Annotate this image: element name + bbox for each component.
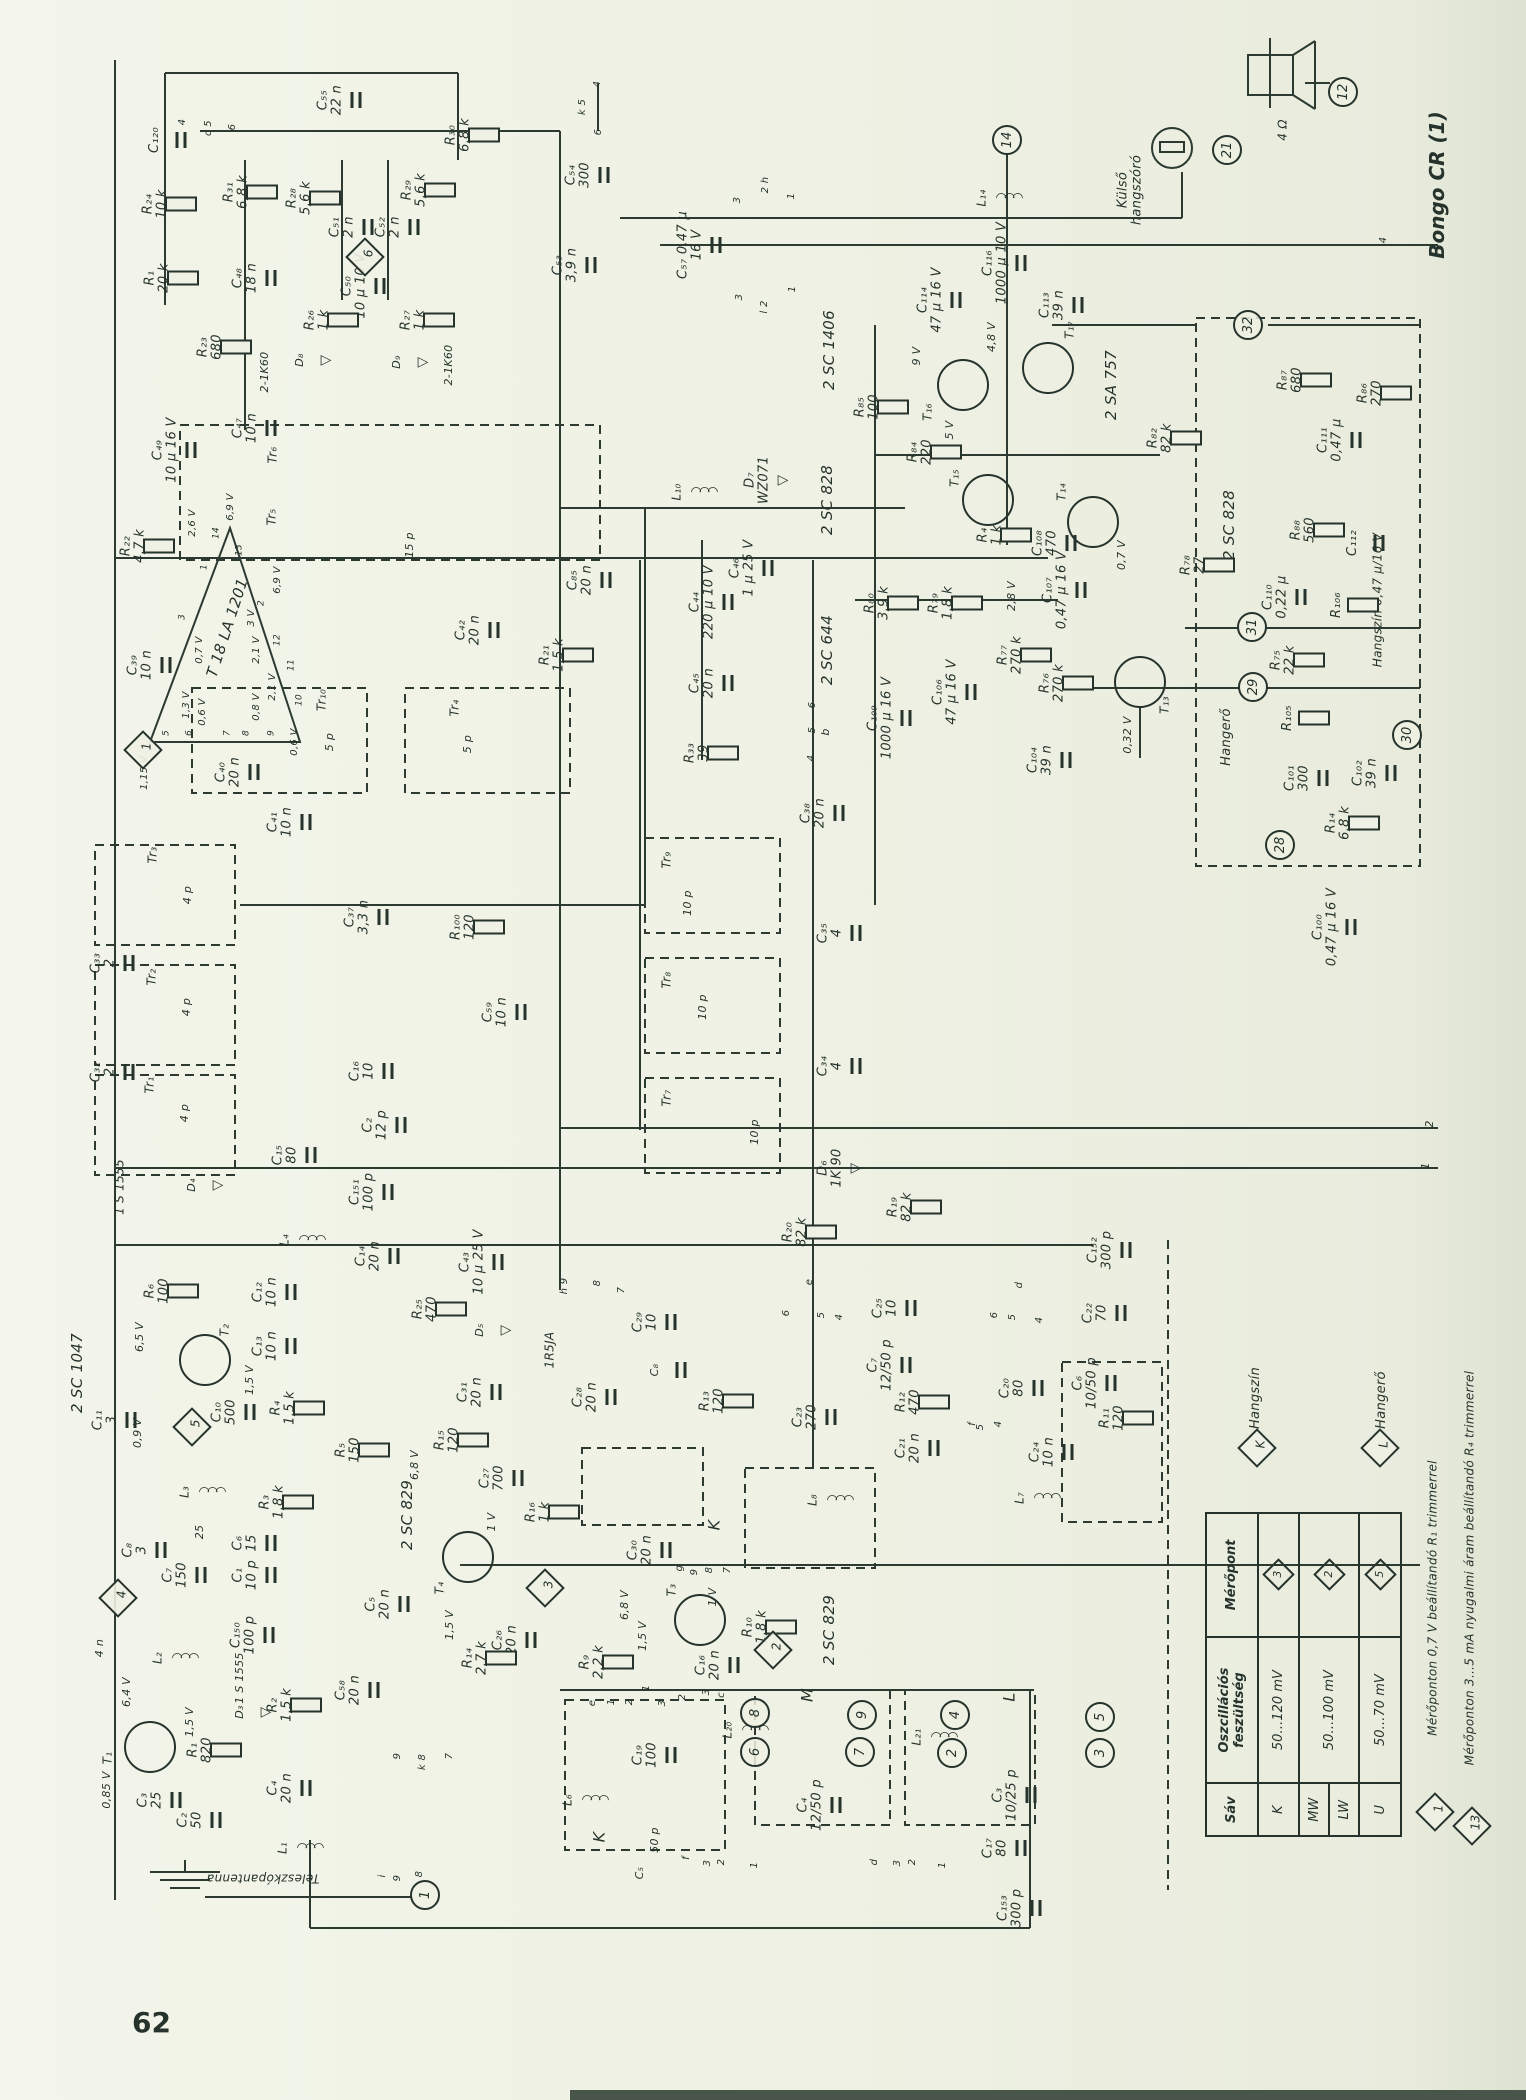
capacitor-symbol — [676, 1362, 687, 1378]
component-label: C₁₂ 10 n — [251, 1277, 278, 1307]
component-label: C₁₀₁ 300 — [1283, 765, 1310, 791]
component-label: C₃₈ 20 n — [799, 798, 826, 828]
resistor-symbol — [309, 191, 341, 206]
component-label: R₈₈ 560 — [1289, 517, 1316, 543]
component-label: K — [592, 1832, 609, 1843]
component-label: L₁₀ — [671, 483, 684, 500]
capacitor-symbol — [711, 237, 722, 253]
component-label: D₃ — [234, 1705, 246, 1718]
resistor-symbol — [1170, 431, 1202, 446]
capacitor-symbol — [1318, 770, 1329, 786]
component-label: 1 — [788, 286, 799, 293]
capacitor-symbol — [286, 1284, 297, 1300]
component-label: l 2 — [760, 300, 771, 313]
component-label: Tr₈ — [661, 971, 674, 988]
component-label: 2 — [717, 1859, 728, 1866]
schematic-page: C₁₂₀4c 56C₅₅ 22 nR₃₁ 6,8 kR₂₄ 10 kR₂₈ 5,… — [0, 0, 1526, 2100]
capacitor-symbol — [851, 925, 862, 941]
component-label: 10 p — [682, 890, 694, 916]
capacitor-symbol — [375, 278, 386, 294]
coil-symbol: ◠◠◠ — [581, 1793, 606, 1808]
capacitor-symbol — [301, 1780, 312, 1796]
component-label: 1R5JA — [544, 1332, 557, 1369]
component-label: R₂₈ 5,6 k — [285, 181, 312, 215]
component-label: C₂₁ 20 n — [894, 1433, 921, 1463]
resistor-symbol — [220, 340, 252, 355]
diode-symbol: ▷ — [213, 1177, 224, 1193]
component-label: 6 — [594, 129, 605, 136]
component-label: C₁₇ 80 — [981, 1838, 1008, 1858]
component-label: R₈₆ 270 — [1356, 380, 1383, 406]
component-label: T₁ — [102, 1752, 115, 1765]
component-label: C₄₈ 18 n — [231, 263, 258, 293]
component-label: R₈₄ 220 — [906, 439, 933, 465]
component-label: D₈ — [294, 353, 306, 366]
capacitor-symbol — [363, 219, 374, 235]
terminal-9: 9 — [847, 1700, 877, 1730]
measurement-table: Sáv Oszcillációs feszültség Mérőpont K50… — [1205, 1512, 1402, 1837]
terminal-14: 14 — [992, 125, 1022, 155]
component-label: R₃ 1,8 k — [258, 1485, 285, 1519]
capacitor-symbol — [171, 1792, 182, 1808]
transistor-T1 — [124, 1721, 176, 1773]
component-label: e — [805, 1279, 816, 1285]
component-label: 1,5 V — [444, 1610, 456, 1640]
component-label: C₁₁₀ 0,22 µ — [1261, 575, 1288, 618]
resistor-symbol — [282, 1495, 314, 1510]
note-text: Mérőponton 0,7 V beállítandó R₁ trimmerr… — [1427, 1460, 1440, 1736]
component-label: C₁₀₆ 47 µ 16 V — [931, 659, 958, 724]
terminal-12: 12 — [1328, 77, 1358, 107]
component-label: 2,8 V — [1006, 581, 1018, 611]
component-label: C₁₅ 80 — [271, 1145, 298, 1165]
component-label: 1 — [938, 1862, 949, 1869]
component-label: R₁ 820 — [186, 1737, 213, 1763]
component-label: C₅₈ 20 n — [334, 1675, 361, 1705]
component-label: C₃ 25 — [136, 1791, 163, 1808]
component-label: R₇₉ 1,8 k — [927, 586, 954, 620]
component-label: Tr₆ — [267, 446, 280, 463]
component-label: C₁₅₁ 100 p — [348, 1173, 375, 1212]
transistor-T4 — [442, 1531, 494, 1583]
capacitor-symbol — [266, 1567, 277, 1583]
capacitor-symbol — [266, 420, 277, 436]
coil-symbol: ◠◠◠ — [995, 191, 1020, 206]
component-label: 3 — [178, 614, 187, 620]
component-label: L₂₀ — [722, 1721, 735, 1738]
component-label: R₂₁ 1,5 k — [538, 638, 565, 672]
component-label: Teleszkópantenna — [207, 1872, 320, 1885]
component-label: 4 — [593, 81, 604, 88]
component-label: 6,5 V — [134, 1322, 146, 1352]
table-header-oszc: Oszcillációs feszültség — [1206, 1637, 1258, 1784]
capacitor-symbol — [1076, 582, 1087, 598]
capacitor-symbol — [513, 1470, 524, 1486]
component-label: C₁₁ 3 — [91, 1410, 118, 1430]
component-label: C₁₀₄ 39 n — [1026, 745, 1053, 775]
component-label: C₁₅₃ 300 p — [996, 1889, 1023, 1928]
component-label: 2 SC 828 — [1222, 490, 1238, 560]
component-label: 6,8 V — [619, 1590, 631, 1620]
capacitor-symbol — [599, 167, 610, 183]
component-label: R₉ 2,2 k — [578, 1645, 605, 1679]
component-label: C₂₂ 70 — [1081, 1303, 1108, 1323]
component-label: C₅₄ 300 — [564, 162, 591, 188]
component-label: C₄₇ 10 n — [231, 413, 258, 443]
table-header-meropont: Mérőpont — [1206, 1513, 1258, 1637]
component-label: 7 — [617, 1287, 628, 1294]
component-label: 25 — [194, 1525, 206, 1540]
table-row: U50…70 mV 5 — [1359, 1513, 1401, 1836]
component-label: C₃₉ 10 n — [126, 650, 153, 680]
component-label: 3 V — [247, 609, 258, 626]
component-label: C₃ 10/25 p — [991, 1769, 1018, 1821]
component-label: R₂₀ 82 k — [781, 1217, 808, 1246]
table-row: K50…120 mV 3 — [1258, 1513, 1300, 1836]
component-label: C₁₉ 100 — [631, 1742, 658, 1768]
component-label: L₂₁ — [911, 1728, 924, 1745]
transistor-T15 — [962, 474, 1014, 526]
component-label: 3 — [733, 197, 744, 204]
component-label: R₁ 20 k — [143, 263, 170, 292]
component-label: 2-1K60 — [259, 352, 271, 393]
transistor-T13 — [1114, 656, 1166, 708]
component-label: R₁₅ 120 — [433, 1427, 460, 1453]
component-label: C₅₃ 3,9 n — [551, 248, 578, 283]
capacitor-symbol — [1031, 1900, 1042, 1916]
capacitor-symbol — [1351, 432, 1362, 448]
capacitor-symbol — [396, 1117, 407, 1133]
component-label: 4 — [807, 755, 818, 762]
capacitor-symbol — [601, 572, 612, 588]
component-label: R₁₉ 82 k — [886, 1192, 913, 1221]
component-label: 2 SC 828 — [820, 465, 836, 535]
component-label: Tr₉ — [661, 851, 674, 868]
component-label: R₂₂ 4,7 k — [119, 529, 146, 563]
component-label: R₄ 1 k — [976, 525, 1003, 546]
diode-symbol: ▷ — [418, 354, 429, 370]
capacitor-symbol — [723, 594, 734, 610]
component-label: C₁₁₄ 47 µ 16 V — [916, 267, 943, 332]
component-label: C₁ 10 p — [231, 1560, 258, 1590]
resistor-symbol — [877, 400, 909, 415]
component-label: M — [800, 1688, 817, 1702]
capacitor-symbol — [399, 1596, 410, 1612]
capacitor-symbol — [306, 1147, 317, 1163]
component-label: c — [717, 1692, 728, 1698]
component-label: C₈ 3 — [121, 1543, 148, 1558]
resistor-symbol — [143, 539, 175, 554]
component-label: D₆ 1K 90 — [816, 1149, 843, 1188]
component-label: 1 — [750, 1862, 761, 1869]
capacitor-symbol — [1016, 1840, 1027, 1856]
component-label: 5 — [817, 1312, 828, 1319]
component-label: C₁₆ 20 n — [694, 1650, 721, 1680]
component-label: 5 V — [944, 421, 956, 440]
component-label: C₁₀₇ 0,47 µ 16 V — [1041, 551, 1068, 629]
component-label: 50 p — [649, 1827, 661, 1853]
coil-symbol: ◠◠◠ — [826, 1493, 851, 1508]
resistor-symbol — [951, 596, 983, 611]
component-label: 8 — [242, 730, 251, 736]
terminal-3: 3 — [1085, 1738, 1115, 1768]
capacitor-symbol — [516, 1004, 527, 1020]
component-label: R₃₀ 6,8 k — [444, 118, 471, 152]
component-label: C₃₃ 2 — [89, 953, 116, 973]
component-label: 1 — [1420, 1162, 1432, 1169]
component-label: R₂₄ 10 k — [141, 189, 168, 218]
testpoint-2-icon: 2 — [1313, 1559, 1346, 1592]
component-label: C₁₆ 10 — [348, 1061, 375, 1081]
transistor-T16 — [937, 359, 989, 411]
capacitor-symbol — [851, 1058, 862, 1074]
component-label: 9 — [393, 1753, 404, 1760]
component-label: R₈₅ 100 — [853, 394, 880, 420]
component-label: 4 — [835, 1314, 846, 1321]
capacitor-symbol — [526, 1632, 537, 1648]
capacitor-symbol — [666, 1314, 677, 1330]
terminal-31: 31 — [1237, 612, 1267, 642]
capacitor-symbol — [906, 1300, 917, 1316]
component-label: 8 — [415, 1871, 426, 1878]
component-label: 0,7 V — [195, 636, 206, 663]
transistor-T17 — [1022, 342, 1074, 394]
component-label: 2 — [625, 1699, 636, 1706]
component-label: e — [588, 1700, 599, 1706]
component-label: 10 — [295, 694, 304, 706]
component-label: C₂ 12 p — [361, 1110, 388, 1140]
resistor-symbol — [1347, 598, 1379, 613]
capacitor-symbol — [211, 1812, 222, 1828]
component-label: C₂₇ 700 — [478, 1465, 505, 1491]
component-label: C₁₀₂ 39 n — [1351, 758, 1378, 788]
component-label: 14 — [212, 527, 221, 539]
capacitor-symbol — [266, 270, 277, 286]
component-label: C₁₁₆ 1000 µ 10 V — [981, 222, 1008, 305]
component-label: 6 — [185, 730, 194, 736]
component-label: C₁₅₂ 300 p — [1086, 1231, 1113, 1270]
component-label: C₁₂₀ — [148, 127, 162, 153]
capacitor-symbol — [951, 292, 962, 308]
component-label: 8 — [593, 1280, 604, 1287]
component-label: c 5 — [204, 120, 215, 136]
capacitor-symbol — [1296, 589, 1307, 605]
resistor-symbol — [1122, 1411, 1154, 1426]
component-label: R₂₃ 680 — [196, 334, 223, 360]
resistor-symbol — [1313, 523, 1345, 538]
component-label: Tr₃ — [147, 846, 160, 863]
component-label: C₈₅ 20 n — [566, 565, 593, 595]
capacitor-symbol — [383, 1063, 394, 1079]
schematic-title: Bongo CR (1) — [1425, 111, 1449, 258]
capacitor-symbol — [383, 1184, 394, 1200]
component-label: R₁₃ 120 — [698, 1388, 725, 1414]
component-label: k 8 — [418, 1754, 429, 1770]
component-label: 5 — [162, 730, 171, 736]
component-label: 9 — [267, 730, 276, 736]
component-label: C₃₁ 20 n — [456, 1377, 483, 1407]
component-label: C₂₅ 10 — [871, 1298, 898, 1318]
component-label: C₇ 12/50 p — [866, 1339, 893, 1391]
component-label: 0,8 V — [252, 693, 263, 720]
component-label: Hangerő — [1220, 708, 1234, 766]
page-number: 62 — [132, 2006, 171, 2039]
resistor-symbol — [468, 128, 500, 143]
component-label: C₅₉ 10 n — [481, 997, 508, 1027]
component-label: 2 — [257, 600, 266, 606]
component-label: L₆ — [562, 1794, 575, 1806]
component-label: C₃₄ 4 — [816, 1056, 843, 1076]
component-label: T₁₇ — [1064, 321, 1077, 339]
component-label: 1,3 V — [182, 691, 193, 718]
resistor-symbol — [1298, 711, 1330, 726]
component-label: 2,6 V — [188, 509, 199, 536]
component-label: R₄ 1,5 k — [269, 1391, 296, 1425]
component-label: T₁₅ — [949, 469, 962, 487]
component-label: C₂₄ 10 n — [1028, 1437, 1055, 1467]
component-label: 4 — [994, 1421, 1005, 1428]
component-label: Tr₁₀ — [316, 689, 329, 711]
component-label: Tr₄ — [449, 699, 462, 716]
resistor-symbol — [167, 1284, 199, 1299]
capacitor-symbol — [666, 1747, 677, 1763]
capacitor-symbol — [156, 1542, 167, 1558]
capacitor-symbol — [729, 1657, 740, 1673]
component-label: Külső hangszóró — [1116, 155, 1143, 225]
component-label: C₂₃ 270 — [791, 1404, 818, 1430]
component-label: 0,6 V — [290, 728, 301, 755]
component-label: T₃ — [666, 1584, 679, 1597]
terminal-5: 5 — [1085, 1702, 1115, 1732]
resistor-symbol — [562, 648, 594, 663]
capacitor-symbol — [834, 805, 845, 821]
component-label: L — [1002, 1692, 1019, 1701]
component-label: 4 p — [179, 1104, 191, 1122]
component-label: 3 — [893, 1860, 904, 1867]
resistor-symbol — [722, 1394, 754, 1409]
component-label: 2 — [1424, 1120, 1436, 1127]
capacitor-symbol — [586, 257, 597, 273]
component-label: C₁₁₃ 39 n — [1038, 290, 1065, 320]
resistor-symbol — [167, 271, 199, 286]
component-label: 3 — [735, 294, 746, 301]
component-label: C₄ 12/50 p — [796, 1779, 823, 1831]
component-label: C₂₀ 80 — [998, 1378, 1025, 1398]
capacitor-symbol — [124, 955, 135, 971]
component-label: D₄ — [186, 1178, 198, 1191]
coil-symbol: ◠◠◠ — [198, 1485, 223, 1500]
component-label: C₅₅ 22 n — [316, 85, 343, 115]
resistor-symbol — [293, 1401, 325, 1416]
component-label: 7 — [223, 730, 232, 736]
resistor-symbol — [165, 197, 197, 212]
component-label: 9 — [690, 1569, 701, 1576]
component-label: C₆ 15 — [231, 1534, 258, 1551]
capacitor-symbol — [493, 1254, 504, 1270]
component-label: 1 S 1555 — [114, 1159, 127, 1215]
resistor-symbol — [930, 445, 962, 460]
component-label: 2 h — [761, 177, 772, 194]
capacitor-symbol — [249, 764, 260, 780]
component-label: C₄ 20 n — [266, 1773, 293, 1803]
coil-symbol: ◠◠◠ — [690, 485, 715, 500]
component-label: C₁₀₈ 470 — [1031, 530, 1058, 556]
component-label: C₄₉ 10 µ 16 V — [151, 417, 178, 482]
component-label: R₇₅ 22 k — [1269, 645, 1296, 674]
terminal-2: 2 — [937, 1738, 967, 1768]
capacitor-symbol — [901, 1357, 912, 1373]
component-label: 10 p — [697, 994, 709, 1020]
terminal-29: 29 — [1238, 672, 1268, 702]
component-label: C₄₅ 20 n — [688, 668, 715, 698]
capacitor-symbol — [266, 1535, 277, 1551]
component-label: C₂₉ 10 — [631, 1312, 658, 1332]
component-label: 4 — [1035, 1317, 1046, 1324]
component-label: Hangszín — [1249, 1367, 1263, 1429]
resistor-symbol — [805, 1225, 837, 1240]
resistor-symbol — [246, 185, 278, 200]
capacitor-symbol — [351, 92, 362, 108]
component-label: R₁₀₅ — [1281, 705, 1295, 731]
component-label: C₇ 150 — [161, 1562, 188, 1588]
component-label: R₇₆ 270 k — [1038, 664, 1065, 702]
component-label: 2 SA 757 — [1104, 350, 1120, 420]
transistor-T3 — [674, 1594, 726, 1646]
component-label: C₁₄ 20 n — [354, 1241, 381, 1271]
component-label: 5 — [808, 727, 819, 734]
component-label: 6 — [990, 1312, 1001, 1319]
component-label: 4 — [1379, 237, 1390, 244]
component-label: d — [1015, 1282, 1026, 1289]
resistor-symbol — [707, 746, 739, 761]
capacitor-symbol — [196, 1567, 207, 1583]
component-label: 4 Ω — [1277, 119, 1290, 141]
diode-symbol: ▷ — [321, 352, 332, 368]
component-label: 1,5 V — [184, 1707, 196, 1737]
component-label: C₁₅₀ 100 p — [229, 1616, 256, 1655]
component-label: 2 SC 829 — [400, 1480, 416, 1550]
component-label: 2 — [908, 1859, 919, 1866]
terminal-1: 1 — [410, 1880, 440, 1910]
component-label: R₆ 100 — [143, 1278, 170, 1304]
component-label: 15 p — [404, 532, 416, 558]
capacitor-symbol — [1116, 1305, 1127, 1321]
resistor-symbol — [1380, 386, 1412, 401]
capacitor-symbol — [1061, 752, 1072, 768]
component-label: Hangerő — [1375, 1371, 1389, 1429]
component-label: C₃₀ 20 n — [626, 1535, 653, 1565]
component-label: C₄₄ 220 µ 10 V — [688, 565, 715, 639]
component-label: f — [682, 1856, 693, 1860]
component-label: b — [820, 728, 832, 735]
table-row: MW50…100 mV 2 — [1299, 1513, 1329, 1836]
component-label: 4 n — [94, 1639, 106, 1657]
resistor-symbol — [1020, 648, 1052, 663]
component-label: 3 — [702, 1689, 713, 1696]
component-label: 5 p — [462, 735, 474, 753]
component-label: 2 SC 829 — [822, 1595, 838, 1665]
capacitor-symbol — [831, 1797, 842, 1813]
diode-symbol: ▷ — [501, 1322, 512, 1338]
component-label: k 5 — [578, 99, 589, 115]
component-label: R₈₂ 82 k — [1146, 423, 1173, 452]
component-label: C₄₃ 10 µ 25 V — [458, 1229, 485, 1294]
resistor-symbol — [1300, 373, 1332, 388]
component-label: C₁₁₁ 0,47 µ — [1316, 418, 1343, 461]
capacitor-symbol — [409, 219, 420, 235]
component-label: 4,8 V — [986, 322, 998, 352]
capacitor-symbol — [1016, 255, 1027, 271]
